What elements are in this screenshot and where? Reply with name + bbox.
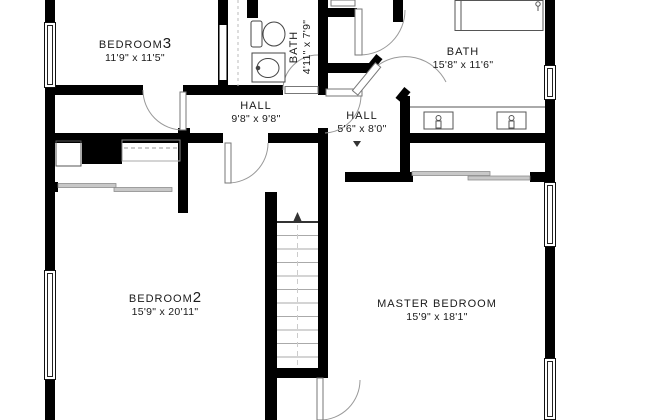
- door-arc-bedroom2: [228, 143, 268, 183]
- door-arc-stairs: [320, 380, 360, 420]
- room-name: HALL: [231, 100, 280, 113]
- door-leaf-stairs: [317, 378, 323, 420]
- room-name: BEDROOM2: [129, 291, 201, 306]
- room-dims: 11'9" x 11'5": [99, 52, 171, 65]
- room-name: BATH: [288, 20, 301, 75]
- stairs-up-icon: [277, 212, 318, 366]
- room-label-hall-main: HALL 9'8" x 9'8": [231, 100, 280, 126]
- room-dims: 15'9" x 20'11": [129, 306, 201, 319]
- room-dims: 15'9" x 18'1": [377, 311, 497, 324]
- room-name: HALL: [337, 110, 386, 123]
- room-label-bath-small: BATH 4'11" x 7'9": [288, 20, 314, 75]
- room-name: BATH: [433, 46, 494, 59]
- plan-linework: [0, 0, 650, 420]
- shower-icon: [455, 1, 543, 31]
- door-arc-bedroom3: [143, 90, 183, 130]
- room-name: BEDROOM3: [99, 37, 171, 52]
- room-label-bedroom3: BEDROOM3 11'9" x 11'5": [99, 37, 171, 65]
- room-name: MASTER BEDROOM: [377, 298, 497, 311]
- room-dims: 4'11" x 7'9": [301, 20, 314, 75]
- room-label-bath-master: BATH 15'8" x 11'6": [433, 46, 494, 72]
- sliding-doors-bedroom2: [58, 184, 172, 192]
- room-dims: 9'8" x 9'8": [231, 113, 280, 126]
- double-vanity-icon: [410, 107, 545, 129]
- wall-diagonal-stub-lower: [395, 87, 410, 103]
- vanity-sink-icon: [252, 53, 285, 82]
- closet-cabinet: [56, 141, 81, 166]
- door-leaf-bath-master: [352, 63, 380, 95]
- toilet-icon: [251, 21, 285, 47]
- stairs-up-arrow: [293, 212, 302, 222]
- door-arc-linen: [360, 10, 405, 55]
- room-label-hall-inner: HALL 5'6" x 8'0": [337, 110, 386, 136]
- opening-marker: [353, 141, 361, 147]
- room-label-master-bedroom: MASTER BEDROOM 15'9" x 18'1": [377, 298, 497, 324]
- room-label-bedroom2: BEDROOM2 15'9" x 20'11": [129, 291, 201, 319]
- closet-rod-icon: [56, 140, 180, 166]
- door-leaf-linen: [355, 9, 362, 55]
- room-dims: 15'8" x 11'6": [433, 59, 494, 72]
- room-dims: 5'6" x 8'0": [337, 123, 386, 136]
- floorplan: BEDROOM3 11'9" x 11'5" BATH 4'11" x 7'9"…: [0, 0, 650, 420]
- door-leaf-bedroom2: [225, 143, 231, 183]
- door-leaf-top-cutoff: [331, 0, 355, 6]
- door-leaf-bedroom3: [180, 92, 186, 130]
- door-leaf-bath-small: [285, 87, 318, 94]
- sliding-doors-master: [412, 172, 530, 181]
